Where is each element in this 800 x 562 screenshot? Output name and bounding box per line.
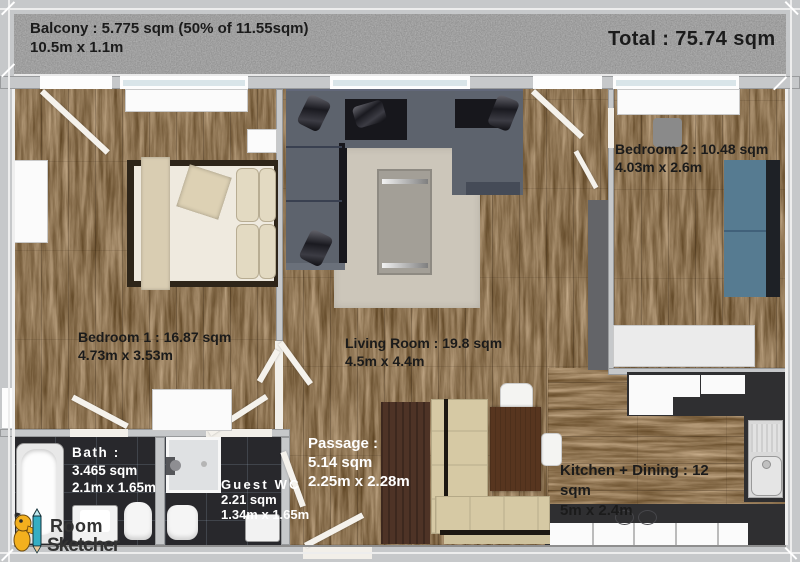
svg-text:Sketcher: Sketcher (47, 535, 121, 554)
svg-text:Room: Room (50, 516, 103, 536)
